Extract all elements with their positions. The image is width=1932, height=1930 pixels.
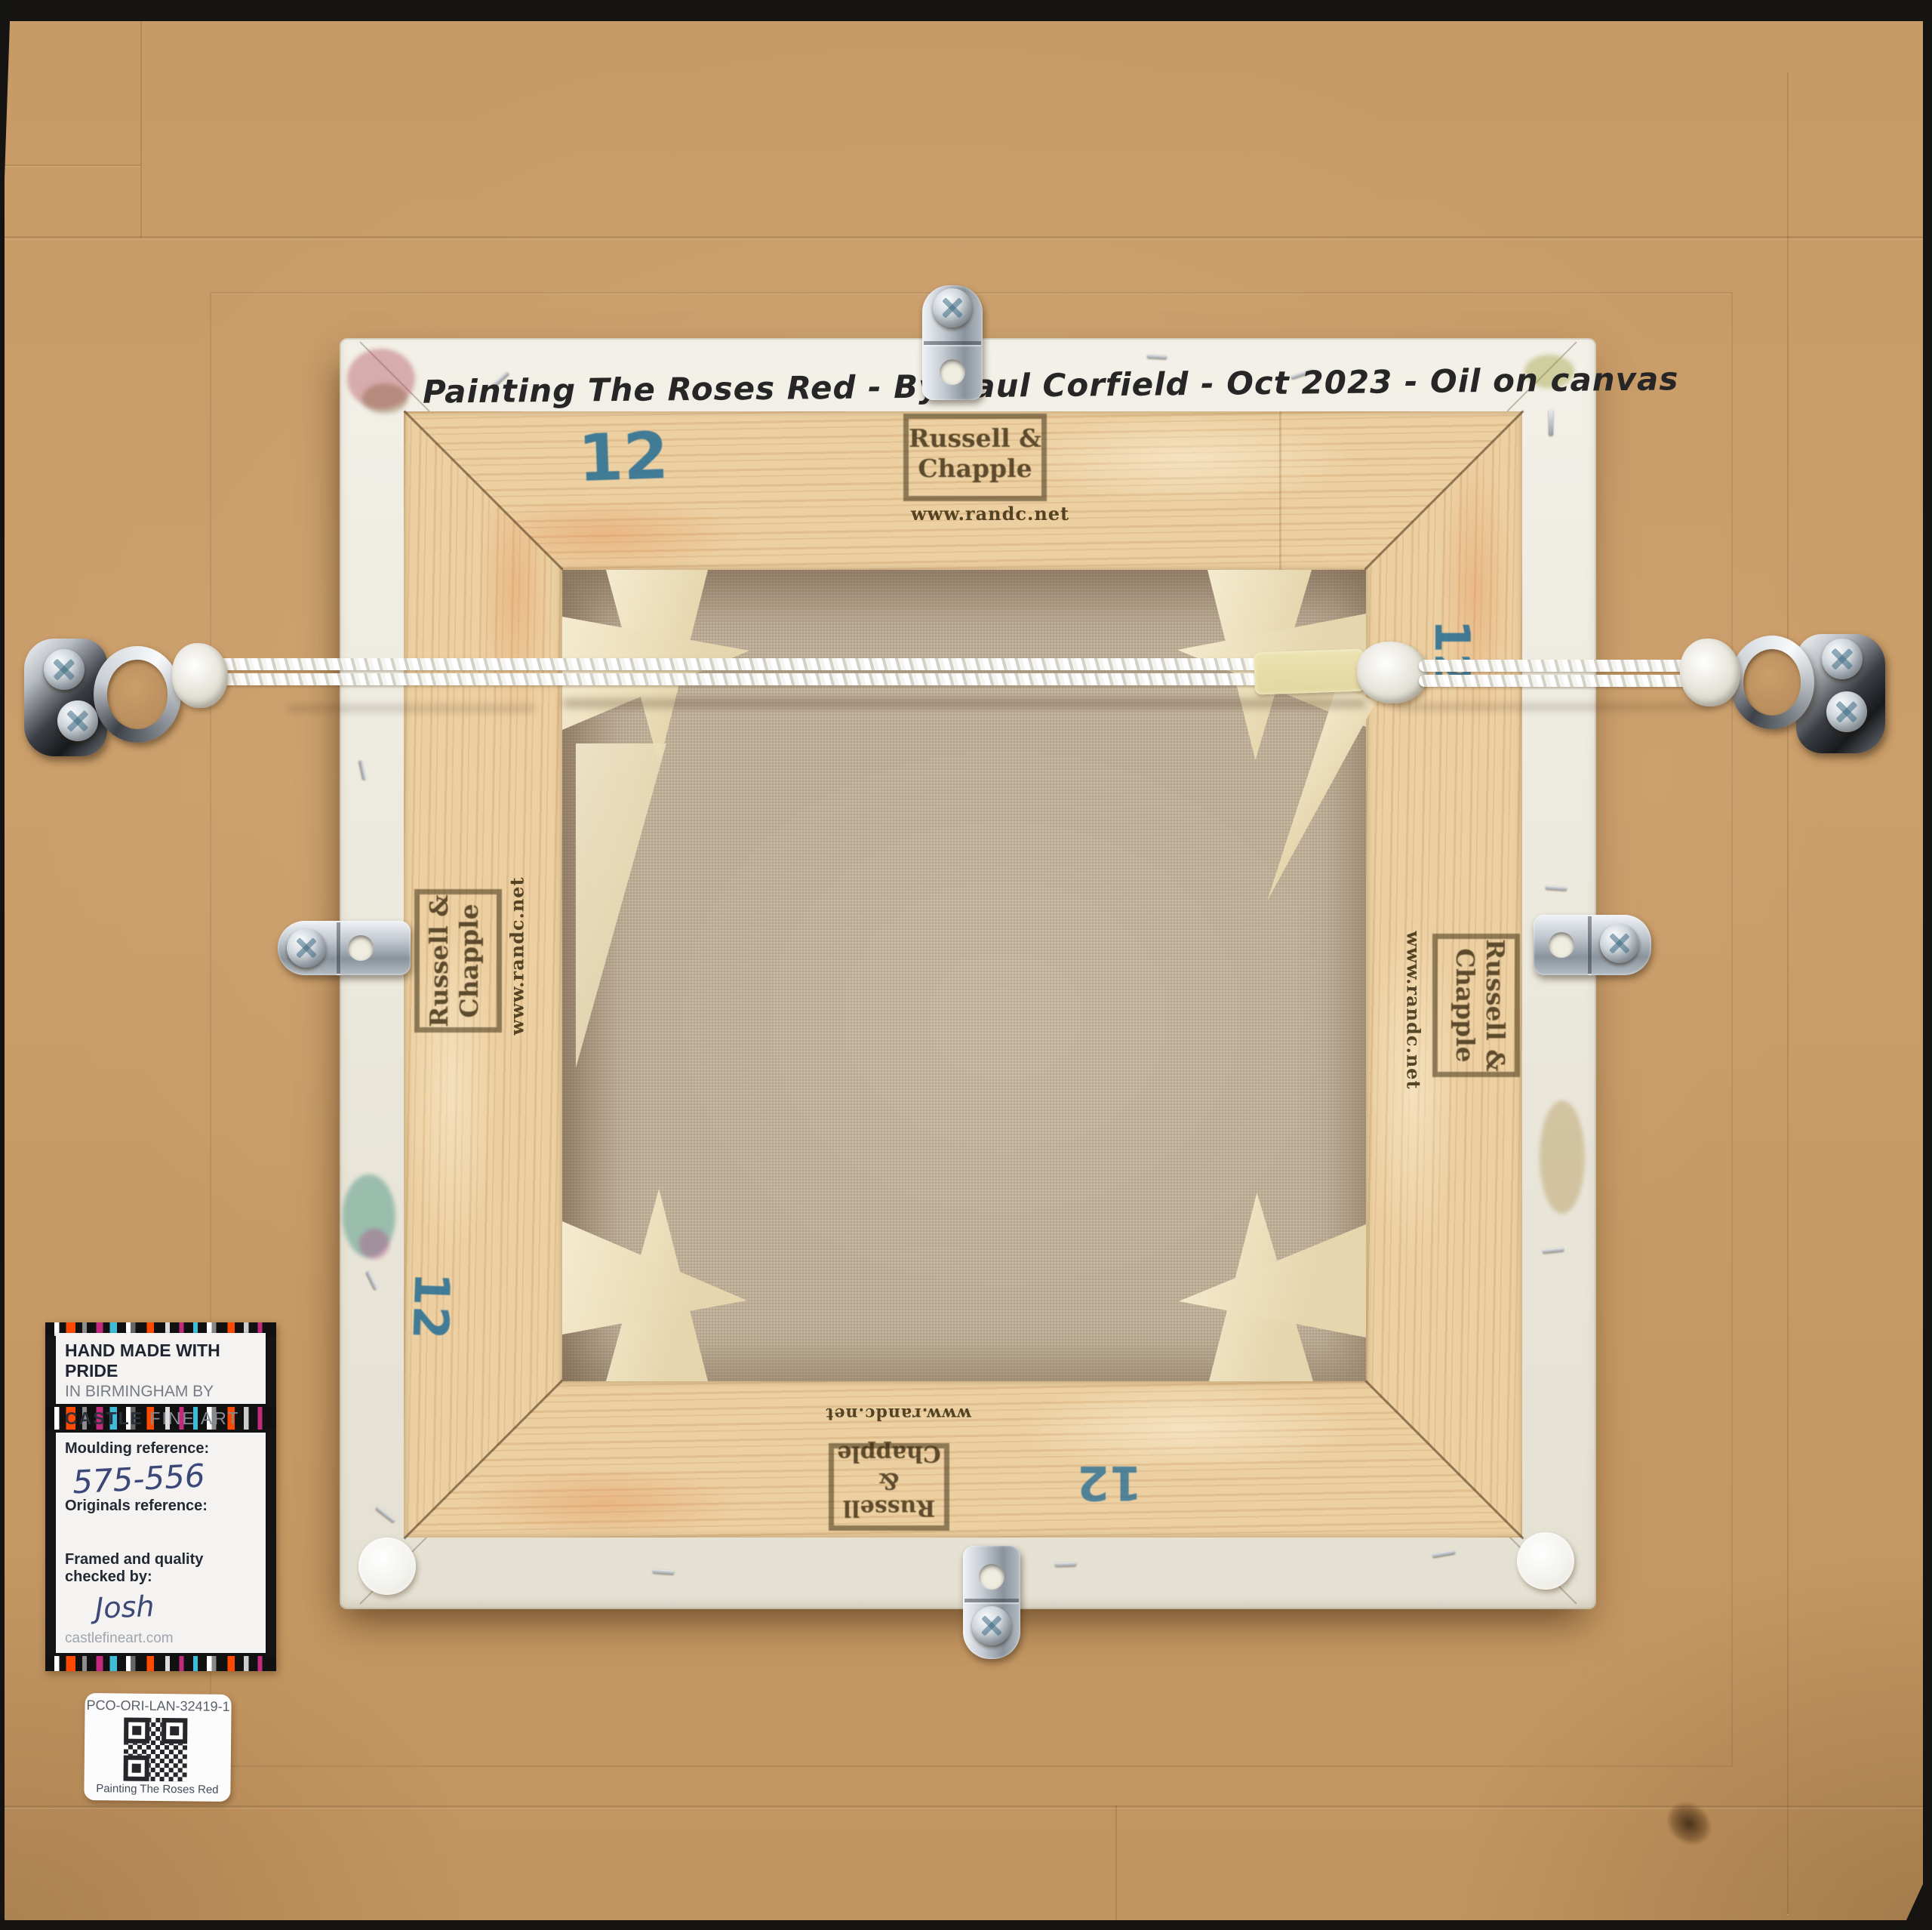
cardboard-flap-crease bbox=[5, 165, 140, 166]
canvas-recess bbox=[562, 570, 1366, 1381]
stamp-line2: Chapple bbox=[834, 1439, 944, 1467]
stamp-line2: Chapple bbox=[454, 894, 485, 1027]
supplier-stamp-right: Russell & Chapple bbox=[1432, 934, 1520, 1077]
screw bbox=[933, 288, 972, 328]
screw bbox=[1600, 924, 1639, 963]
supplier-stamp-box: Russell & Chapple bbox=[903, 414, 1047, 501]
qr-sticker: PCO-ORI-LAN-32419-1 Painting The Roses R… bbox=[84, 1693, 231, 1802]
hanging-cord bbox=[189, 658, 1263, 685]
scuff-mark bbox=[1647, 1782, 1731, 1865]
photo-back-of-framed-canvas: Russell & Chapple www.randc.net Russell … bbox=[0, 0, 1932, 1930]
clip-hole bbox=[940, 359, 965, 385]
felt-pad bbox=[358, 1538, 416, 1595]
qr-finder bbox=[124, 1756, 149, 1781]
supplier-stamp-box: Russell & Chapple bbox=[1432, 934, 1520, 1077]
cord-knot bbox=[1357, 642, 1428, 703]
felt-pad bbox=[1517, 1532, 1574, 1590]
stamp-line2: Chapple bbox=[909, 454, 1041, 484]
supplier-url-left: www.randc.net bbox=[506, 892, 528, 1036]
cord-shadow bbox=[287, 705, 536, 712]
brand-castle: CASTLE bbox=[65, 1408, 143, 1428]
stretcher-wedge-loose bbox=[576, 743, 666, 1068]
label-website: castlefineart.com bbox=[65, 1630, 174, 1647]
stamp-line2: Chapple bbox=[1451, 939, 1481, 1072]
qr-code bbox=[124, 1718, 188, 1782]
maker-label: HAND MADE WITH PRIDE IN BIRMINGHAM BY CA… bbox=[45, 1322, 276, 1671]
cardboard-flap-edge bbox=[140, 20, 142, 239]
clip-hole bbox=[1549, 932, 1574, 958]
cardboard-crease-bottom bbox=[5, 1805, 1924, 1808]
size-mark-left: 12 bbox=[404, 1252, 460, 1359]
sticker-code: PCO-ORI-LAN-32419-1 bbox=[86, 1698, 229, 1715]
checked-by-value: Josh bbox=[94, 1586, 257, 1624]
cord-shadow bbox=[1396, 703, 1713, 710]
size-mark-right: 12 bbox=[1426, 600, 1479, 706]
clip-hole bbox=[348, 935, 374, 961]
stamp-line1: Russell & bbox=[834, 1467, 944, 1521]
cord-knot bbox=[1680, 639, 1740, 706]
clip-hole bbox=[979, 1564, 1004, 1590]
screw bbox=[1826, 691, 1867, 732]
paint-smudge bbox=[362, 383, 408, 414]
photo-edge-right bbox=[1923, 0, 1932, 1930]
paint-smudge bbox=[359, 1229, 389, 1259]
staple bbox=[1055, 1562, 1076, 1567]
moulding-reference-value: 575-556 bbox=[72, 1454, 257, 1501]
cord-shadow bbox=[562, 699, 1366, 708]
photo-edge-bottom bbox=[0, 1920, 1932, 1930]
originals-reference-label: Originals reference: bbox=[65, 1498, 257, 1515]
qr-finder bbox=[124, 1718, 149, 1744]
sticker-caption: Painting The Roses Red bbox=[84, 1782, 230, 1796]
wood-joint-line bbox=[1279, 411, 1281, 570]
d-ring-right bbox=[1730, 636, 1814, 729]
checked-by-label: Framed and quality checked by: bbox=[65, 1551, 257, 1586]
brand-fine-art: FINE ART bbox=[149, 1408, 239, 1428]
screw bbox=[1822, 639, 1863, 679]
cardboard-crease bbox=[5, 236, 1924, 239]
canvas-back: Russell & Chapple www.randc.net Russell … bbox=[340, 338, 1596, 1609]
size-mark-top: 12 bbox=[577, 418, 669, 497]
label-stripes bbox=[45, 1656, 276, 1671]
screw bbox=[972, 1606, 1011, 1645]
stamp-line1: Russell & bbox=[1480, 939, 1510, 1072]
screw bbox=[44, 649, 85, 690]
cord-knot bbox=[172, 643, 228, 708]
stamp-line1: Russell & bbox=[424, 894, 454, 1027]
size-mark-bottom: 12 bbox=[1057, 1458, 1162, 1510]
cardboard-crease-bottom-vertical bbox=[1115, 1805, 1117, 1922]
supplier-stamp-box: Russell & Chapple bbox=[414, 889, 502, 1033]
supplier-stamp-box: Russell & Chapple bbox=[829, 1443, 949, 1531]
stamp-line1: Russell & bbox=[909, 423, 1041, 454]
label-brand-card: HAND MADE WITH PRIDE IN BIRMINGHAM BY CA… bbox=[56, 1333, 266, 1404]
d-ring-left bbox=[94, 646, 181, 743]
masking-tape bbox=[1254, 648, 1365, 694]
originals-reference-value bbox=[65, 1515, 257, 1545]
supplier-url-right: www.randc.net bbox=[1403, 931, 1425, 1075]
screw bbox=[287, 928, 326, 968]
qr-finder bbox=[162, 1718, 187, 1744]
label-heading: HAND MADE WITH PRIDE bbox=[65, 1341, 257, 1381]
supplier-stamp-bottom: Russell & Chapple bbox=[829, 1443, 949, 1531]
screw bbox=[57, 700, 98, 741]
supplier-url-top: www.randc.net bbox=[911, 503, 1054, 525]
staple bbox=[1549, 410, 1553, 436]
hanging-cord bbox=[1419, 660, 1689, 687]
supplier-stamp-top: Russell & Chapple bbox=[903, 414, 1047, 501]
label-fields-card: Moulding reference: 575-556 Originals re… bbox=[56, 1433, 266, 1653]
supplier-stamp-left: Russell & Chapple bbox=[414, 889, 502, 1033]
label-subheading: IN BIRMINGHAM BY bbox=[65, 1383, 257, 1401]
paint-smudge bbox=[1540, 1100, 1585, 1214]
photo-edge-top bbox=[0, 0, 1932, 21]
cardboard-crease-right bbox=[1787, 72, 1789, 1914]
supplier-url-bottom: www.randc.net bbox=[828, 1404, 971, 1424]
